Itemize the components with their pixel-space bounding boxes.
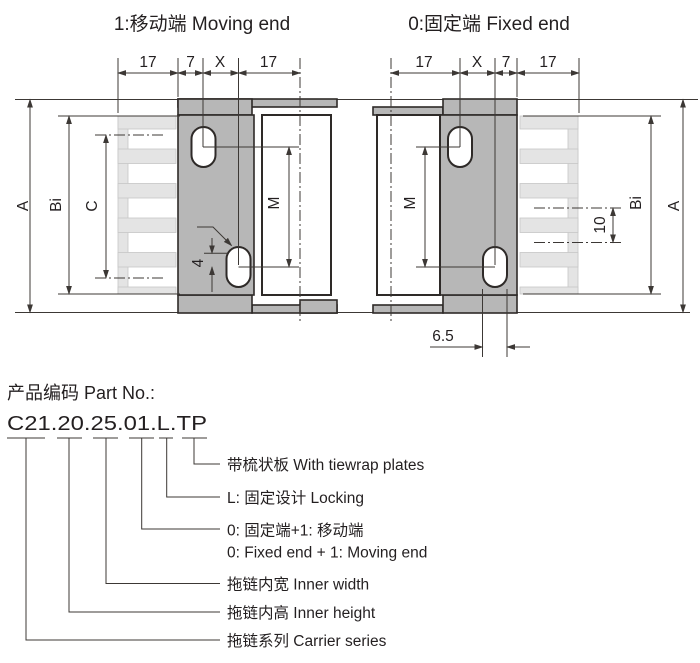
dim-10: 10 xyxy=(592,216,609,234)
legend-ends-en: 0: Fixed end + 1: Moving end xyxy=(227,545,427,562)
dim-A-left: A xyxy=(15,200,32,211)
title-fixed-end: 0:固定端 Fixed end xyxy=(408,13,570,35)
legend-inner-height: 拖链内高 Inner height xyxy=(227,604,376,622)
dim-7-right: 7 xyxy=(502,54,511,71)
part-number: C21.20.25.01.L.TP xyxy=(7,413,207,435)
legend-ends-cn: 0: 固定端+1: 移动端 xyxy=(227,522,364,540)
dim-x-right: X xyxy=(472,54,483,71)
legend-carrier-series: 拖链系列 Carrier series xyxy=(227,632,387,650)
carrier-end-bracket-drawing: 17 7 X 17 17 X 7 17 A A Bi Bi C M xyxy=(0,0,700,663)
tiewrap-comb-left xyxy=(118,116,176,294)
dim-17-left-a: 17 xyxy=(139,54,156,71)
dim-x-left: X xyxy=(215,54,226,71)
dim-4: 4 xyxy=(190,258,207,267)
dim-17-right-b: 17 xyxy=(539,54,556,71)
dim-Bi-right: Bi xyxy=(628,196,645,210)
part-number-tree xyxy=(26,438,220,640)
view-moving-end xyxy=(118,99,337,313)
legend-locking: L: 固定设计 Locking xyxy=(227,489,364,507)
dim-6-5: 6.5 xyxy=(432,328,454,345)
part-number-section: 产品编码 Part No.: C21.20.25.01.L.TP 带梳状板 Wi… xyxy=(7,383,427,650)
dim-7-left: 7 xyxy=(186,54,195,71)
dim-A-right: A xyxy=(666,200,683,211)
dim-Bi-left: Bi xyxy=(48,198,65,212)
title-moving-end: 1:移动端 Moving end xyxy=(114,13,290,35)
legend-tiewrap-plates: 带梳状板 With tiewrap plates xyxy=(227,456,424,474)
construction-lines xyxy=(15,100,698,313)
dim-M-right: M xyxy=(402,197,419,210)
part-no-heading: 产品编码 Part No.: xyxy=(7,383,155,403)
technical-drawing-page: 17 7 X 17 17 X 7 17 A A Bi Bi C M xyxy=(0,0,700,663)
dim-17-right-a: 17 xyxy=(415,54,432,71)
dim-M-left: M xyxy=(266,197,283,210)
dim-C: C xyxy=(84,200,101,211)
dim-17-left-b: 17 xyxy=(260,54,277,71)
legend-inner-width: 拖链内宽 Inner width xyxy=(227,576,369,594)
tiewrap-comb-right xyxy=(520,116,578,294)
